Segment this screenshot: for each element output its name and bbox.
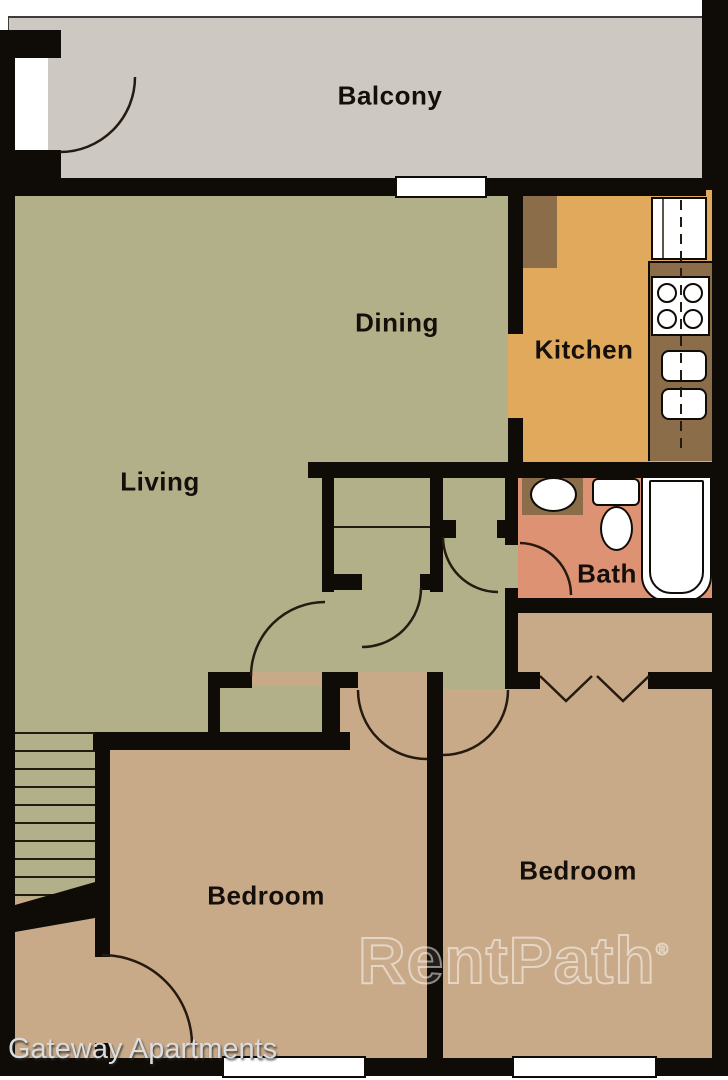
kitchen-sink-icon bbox=[661, 388, 707, 420]
entry-niche-floor bbox=[218, 686, 322, 732]
wall-vestibule-stub-left bbox=[443, 520, 456, 538]
wall-bedroom-divider bbox=[427, 672, 443, 1060]
window-bedroom2 bbox=[512, 1056, 657, 1078]
kitchen-pantry bbox=[523, 196, 557, 268]
wall-closetstrip-bottom-right bbox=[648, 672, 712, 689]
kitchen-label: Kitchen bbox=[535, 335, 634, 366]
wall-kitchen-left-upper bbox=[508, 188, 523, 334]
burner-icon bbox=[683, 283, 703, 303]
wall-balcony-door-top bbox=[15, 30, 61, 58]
wall-niche-right bbox=[322, 672, 340, 732]
living-label: Living bbox=[120, 467, 200, 498]
refrigerator-icon bbox=[651, 197, 707, 260]
bath-label: Bath bbox=[577, 559, 637, 590]
burner-icon bbox=[657, 309, 677, 329]
wall-niche-left bbox=[208, 672, 220, 734]
bedroom1-label: Bedroom bbox=[207, 881, 325, 912]
wall-hall-top bbox=[308, 462, 728, 478]
wall-balcony-bottom bbox=[8, 178, 706, 196]
vanity-sink-icon bbox=[530, 477, 577, 512]
kitchen-sink-icon bbox=[661, 350, 707, 382]
rentpath-watermark: RentPath® bbox=[358, 922, 669, 998]
window-dining bbox=[395, 176, 487, 198]
wall-closetstrip-bottom-left bbox=[505, 672, 540, 689]
wall-closetstrip-left bbox=[505, 612, 518, 678]
wall-bath-left-upper bbox=[505, 476, 518, 545]
burner-icon bbox=[657, 283, 677, 303]
floor-plan: Balcony Dining Kitchen Living Bath Bedro… bbox=[0, 0, 728, 1080]
wall-closet-bottom-right bbox=[420, 574, 443, 590]
wall-stairs-bedroom1 bbox=[95, 742, 110, 957]
dining-label: Dining bbox=[355, 308, 439, 339]
property-caption: Gateway Apartments bbox=[8, 1033, 277, 1066]
bathtub-inner-line bbox=[649, 480, 704, 594]
wall-bath-bottom bbox=[505, 598, 728, 613]
toilet-tank-icon bbox=[592, 478, 640, 506]
wall-balcony-right bbox=[702, 0, 728, 190]
wall-closet-bottom-left bbox=[322, 574, 362, 590]
registered-mark: ® bbox=[656, 940, 670, 959]
balcony-label: Balcony bbox=[338, 81, 443, 112]
bedroom2-label: Bedroom bbox=[519, 856, 637, 887]
stairs-floor bbox=[15, 733, 95, 905]
burner-icon bbox=[683, 309, 703, 329]
toilet-bowl-icon bbox=[600, 506, 633, 551]
wall-living-bottom bbox=[93, 732, 350, 750]
bedroom1-floor-left bbox=[95, 750, 210, 1060]
